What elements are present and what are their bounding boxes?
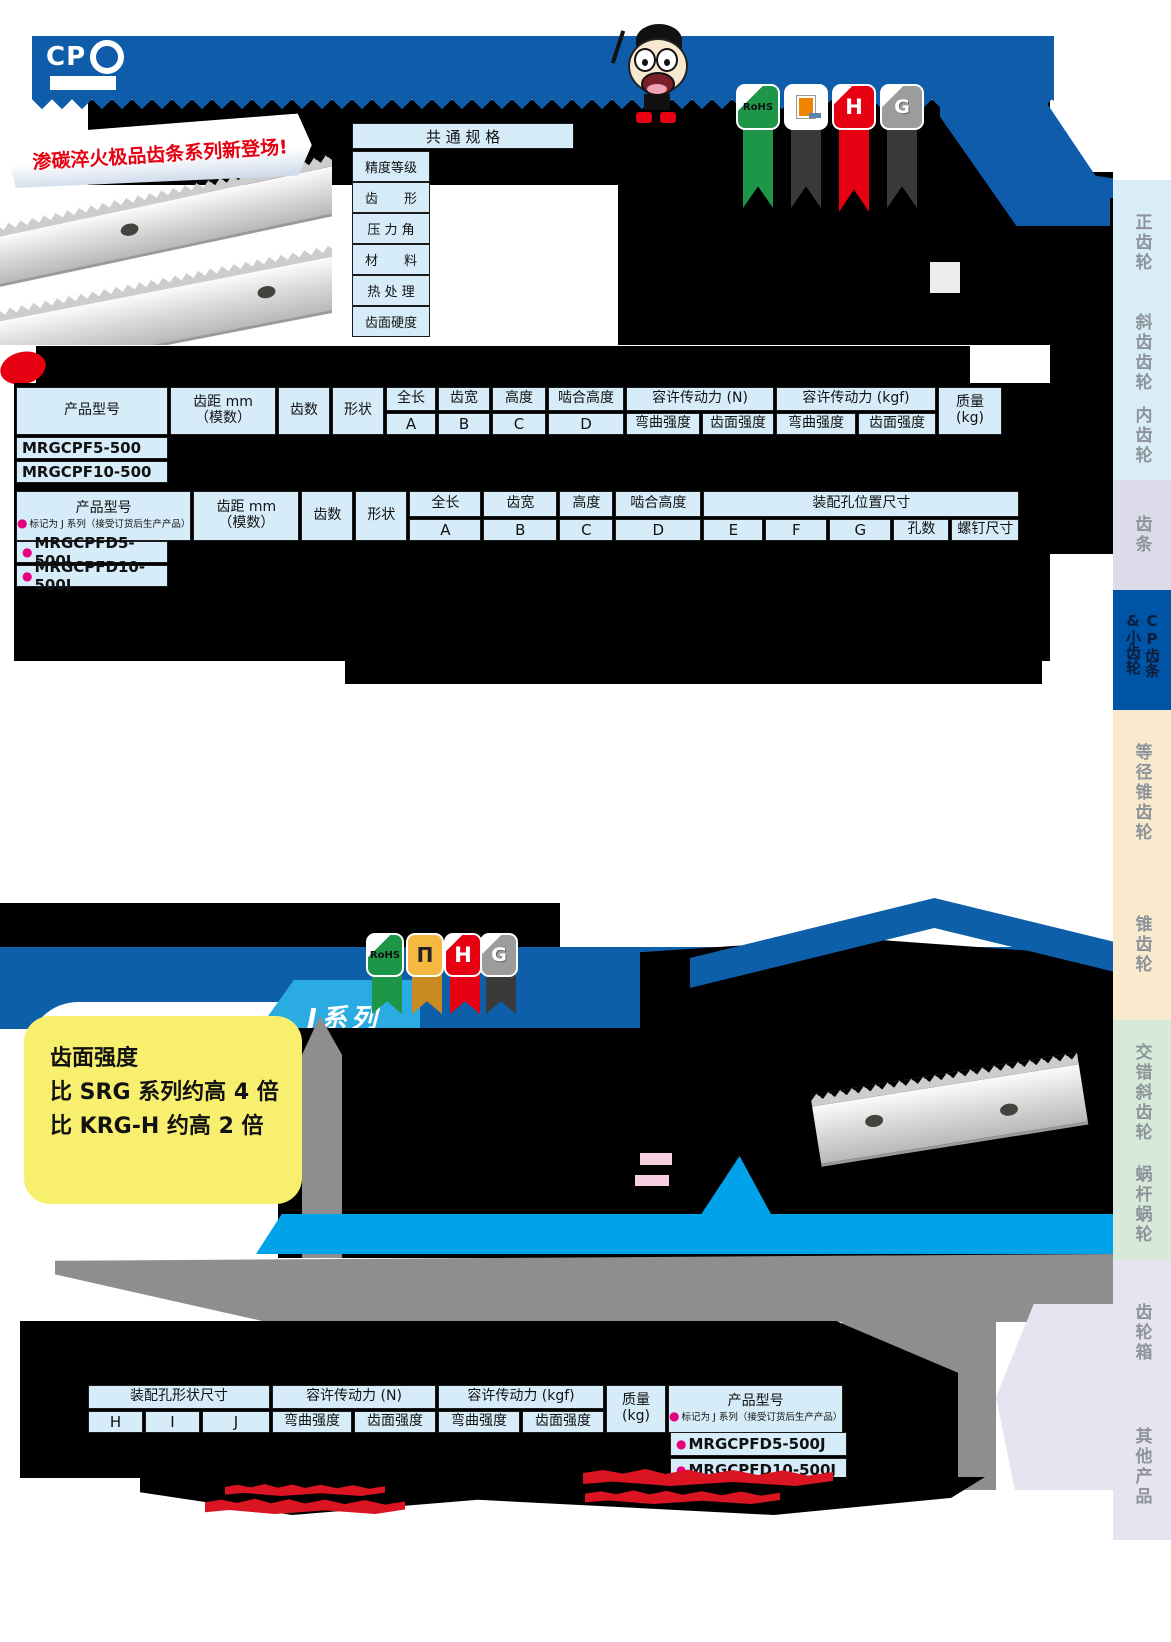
dimension-table-1: 产品型号 齿距 mm （模数） 齿数 形状 全长 齿宽 高度 啮合高度 容许传动… <box>14 385 1004 437</box>
col-b: B <box>438 413 490 435</box>
sidebar-item-gearbox[interactable]: 齿轮箱 <box>1113 1268 1171 1398</box>
mascot-arm <box>611 30 625 64</box>
col-total-length: 全长 <box>386 387 436 411</box>
sidebar-item-gear-rack[interactable]: 齿条 <box>1113 500 1171 570</box>
col-e: E <box>703 519 763 541</box>
sidebar-item-bevel-gear[interactable]: 锥齿轮 <box>1113 880 1171 1010</box>
product-model: MRGCPFD5-500J <box>688 1435 825 1453</box>
hardened-badge-icon: H <box>832 84 876 130</box>
col-b: B <box>483 519 557 541</box>
hardened-badge-label: H <box>454 943 472 967</box>
rack-badge-glyph: Π <box>417 943 434 967</box>
col-force-kgf: 容许传动力 (kgf) <box>438 1385 604 1409</box>
col-mesh-height: 啮合高度 <box>548 387 624 411</box>
hardened-badge-icon: H <box>444 933 482 977</box>
col-a: A <box>409 519 481 541</box>
product-model: MRGCPF10-500 <box>22 463 151 481</box>
redacted-caption-strip <box>36 346 970 383</box>
col-bend-n: 弯曲强度 <box>626 413 700 435</box>
common-spec-title: 共 通 规 格 <box>352 123 574 149</box>
col-surface-kgf: 齿面强度 <box>522 1411 604 1433</box>
mascot-foot <box>660 112 676 123</box>
col-c: C <box>559 519 613 541</box>
cp-rack-pinion-logo: CP <box>46 40 166 96</box>
hardened-badge-label: H <box>845 95 863 119</box>
sidebar-item-internal-gear[interactable]: 内齿轮 <box>1113 392 1171 480</box>
product-model: MRGCPFD10-500J <box>34 558 167 594</box>
col-g: G <box>829 519 891 541</box>
small-diagram-box <box>930 262 960 293</box>
col-hole-count: 孔数 <box>893 519 949 541</box>
table-row: ● MRGCPFD5-500J <box>670 1432 847 1456</box>
sidebar-item-miter-gear[interactable]: 等径锥齿轮 <box>1113 718 1171 868</box>
sidebar-item-cp-rack-pinion[interactable]: CP齿条&小齿轮 <box>1113 604 1171 698</box>
ground-badge-icon: G <box>480 933 518 977</box>
col-d: D <box>548 413 624 435</box>
col-screw-size: 螺钉尺寸 <box>951 519 1019 541</box>
col-force-n: 容许传动力 (N) <box>272 1385 436 1409</box>
spec-row-heat-treatment: 热 处 理 <box>352 275 430 306</box>
mascot-eye <box>656 48 678 72</box>
cp-logo-text: CP <box>46 42 86 72</box>
table-row: MRGCPF5-500 <box>16 437 168 459</box>
col-face-width: 齿宽 <box>438 387 490 411</box>
col-mass: 质量 (kg) <box>938 387 1002 435</box>
col-surface-kgf: 齿面强度 <box>858 413 936 435</box>
redacted-footnote-strip <box>345 658 1042 684</box>
table-row: MRGCPF10-500 <box>16 461 168 483</box>
col-teeth: 齿数 <box>301 491 353 541</box>
cyan-decor-band <box>256 1214 1114 1254</box>
col-product-no: 产品型号 <box>16 387 168 435</box>
col-mount-hole-pos: 装配孔位置尺寸 <box>703 491 1019 517</box>
col-mass: 质量 (kg) <box>606 1385 666 1433</box>
sidebar-item-spur-gear[interactable]: 正齿轮 <box>1113 196 1171 290</box>
col-a: A <box>386 413 436 435</box>
sidebar-item-screw-gear[interactable]: 交错斜齿轮 <box>1113 1028 1171 1158</box>
col-i: I <box>145 1411 200 1433</box>
col-face-width: 齿宽 <box>483 491 557 517</box>
col-j: J <box>202 1411 270 1433</box>
redacted-black-column <box>1050 172 1113 554</box>
col-mount-hole-shape: 装配孔形状尺寸 <box>88 1385 270 1409</box>
col-h: H <box>88 1411 143 1433</box>
spec-row-accuracy: 精度等级 <box>352 151 430 182</box>
pinion-circle-icon <box>90 40 124 74</box>
ground-badge-label: G <box>894 96 910 118</box>
strength-line: 比 SRG 系列约高 4 倍 <box>50 1076 302 1110</box>
col-d: D <box>615 519 701 541</box>
col-teeth: 齿数 <box>278 387 330 435</box>
rack-bar-icon <box>50 76 116 90</box>
mascot-eye <box>634 48 656 72</box>
rohs-badge-label: RoHS <box>370 950 400 961</box>
col-shape: 形状 <box>332 387 384 435</box>
table-row: ● MRGCPFD10-500J <box>16 565 168 587</box>
rohs-badge-icon: RoHS <box>366 933 404 977</box>
col-surface-n: 齿面强度 <box>702 413 774 435</box>
col-force-n: 容许传动力 (N) <box>626 387 774 411</box>
j-series-bullet: ● <box>22 545 32 559</box>
col-mesh-height: 啮合高度 <box>615 491 701 517</box>
machining-badge-icon <box>784 84 828 130</box>
rack-badge-icon: Π <box>406 933 444 977</box>
lavender-decor-shape <box>996 1304 1114 1490</box>
spec-row-tooth-profile: 齿 形 <box>352 182 430 213</box>
spec-row-pressure-angle: 压 力 角 <box>352 213 430 244</box>
mascot-character <box>608 24 704 126</box>
col-height: 高度 <box>492 387 546 411</box>
redacted-header-cell <box>22 1385 86 1433</box>
col-bend-kgf: 弯曲强度 <box>776 413 856 435</box>
j-series-bullet: ● <box>676 1437 686 1451</box>
mascot-mouth <box>641 72 675 96</box>
product-model: MRGCPF5-500 <box>22 439 141 457</box>
col-force-kgf: 容许传动力 (kgf) <box>776 387 936 411</box>
mascot-body <box>644 94 670 110</box>
ground-badge-icon: G <box>880 84 924 130</box>
new-arrival-text: 渗碳淬火极品齿条系列新登场! <box>32 132 289 175</box>
gear-rack-image <box>812 1064 1088 1164</box>
spec-row-surface-hardness: 齿面硬度 <box>352 306 430 337</box>
rohs-badge-icon: RoHS <box>736 84 780 130</box>
spec-row-material: 材 料 <box>352 244 430 275</box>
gear-rack-photo-j <box>800 1045 1090 1215</box>
strength-line: 比 KRG-H 约高 2 倍 <box>50 1110 302 1144</box>
dimension-table-3: 装配孔形状尺寸 容许传动力 (N) 容许传动力 (kgf) 质量 (kg) 产品… <box>20 1383 845 1435</box>
col-pitch: 齿距 mm （模数） <box>170 387 276 435</box>
pink-diagram-fragment <box>635 1175 669 1186</box>
mascot-foot <box>636 112 652 123</box>
sidebar-item-other-products[interactable]: 其他产品 <box>1113 1400 1171 1534</box>
strength-highlight-box: 齿面强度 比 SRG 系列约高 4 倍 比 KRG-H 约高 2 倍 <box>24 1016 302 1204</box>
col-pitch: 齿距 mm （模数） <box>193 491 299 541</box>
pink-diagram-fragment <box>640 1153 672 1165</box>
catalog-page: CP RoHS H G 共 通 规 格 精度等级 齿 形 压 力 角 材 料 热… <box>0 0 1171 1642</box>
col-total-length: 全长 <box>409 491 481 517</box>
sidebar-item-worm-gear[interactable]: 蜗杆蜗轮 <box>1113 1152 1171 1258</box>
col-bend-kgf: 弯曲强度 <box>438 1411 520 1433</box>
col-bend-n: 弯曲强度 <box>272 1411 352 1433</box>
col-product-no: 产品型号 ●标记为 J 系列（接受订货后生产产品） <box>668 1385 843 1433</box>
col-shape: 形状 <box>355 491 407 541</box>
col-height: 高度 <box>559 491 613 517</box>
rohs-badge-label: RoHS <box>743 102 773 113</box>
j-series-bullet: ● <box>22 569 32 583</box>
col-f: F <box>765 519 827 541</box>
col-surface-n: 齿面强度 <box>354 1411 436 1433</box>
ground-badge-label: G <box>491 944 507 966</box>
col-c: C <box>492 413 546 435</box>
strength-title: 齿面强度 <box>50 1042 302 1076</box>
